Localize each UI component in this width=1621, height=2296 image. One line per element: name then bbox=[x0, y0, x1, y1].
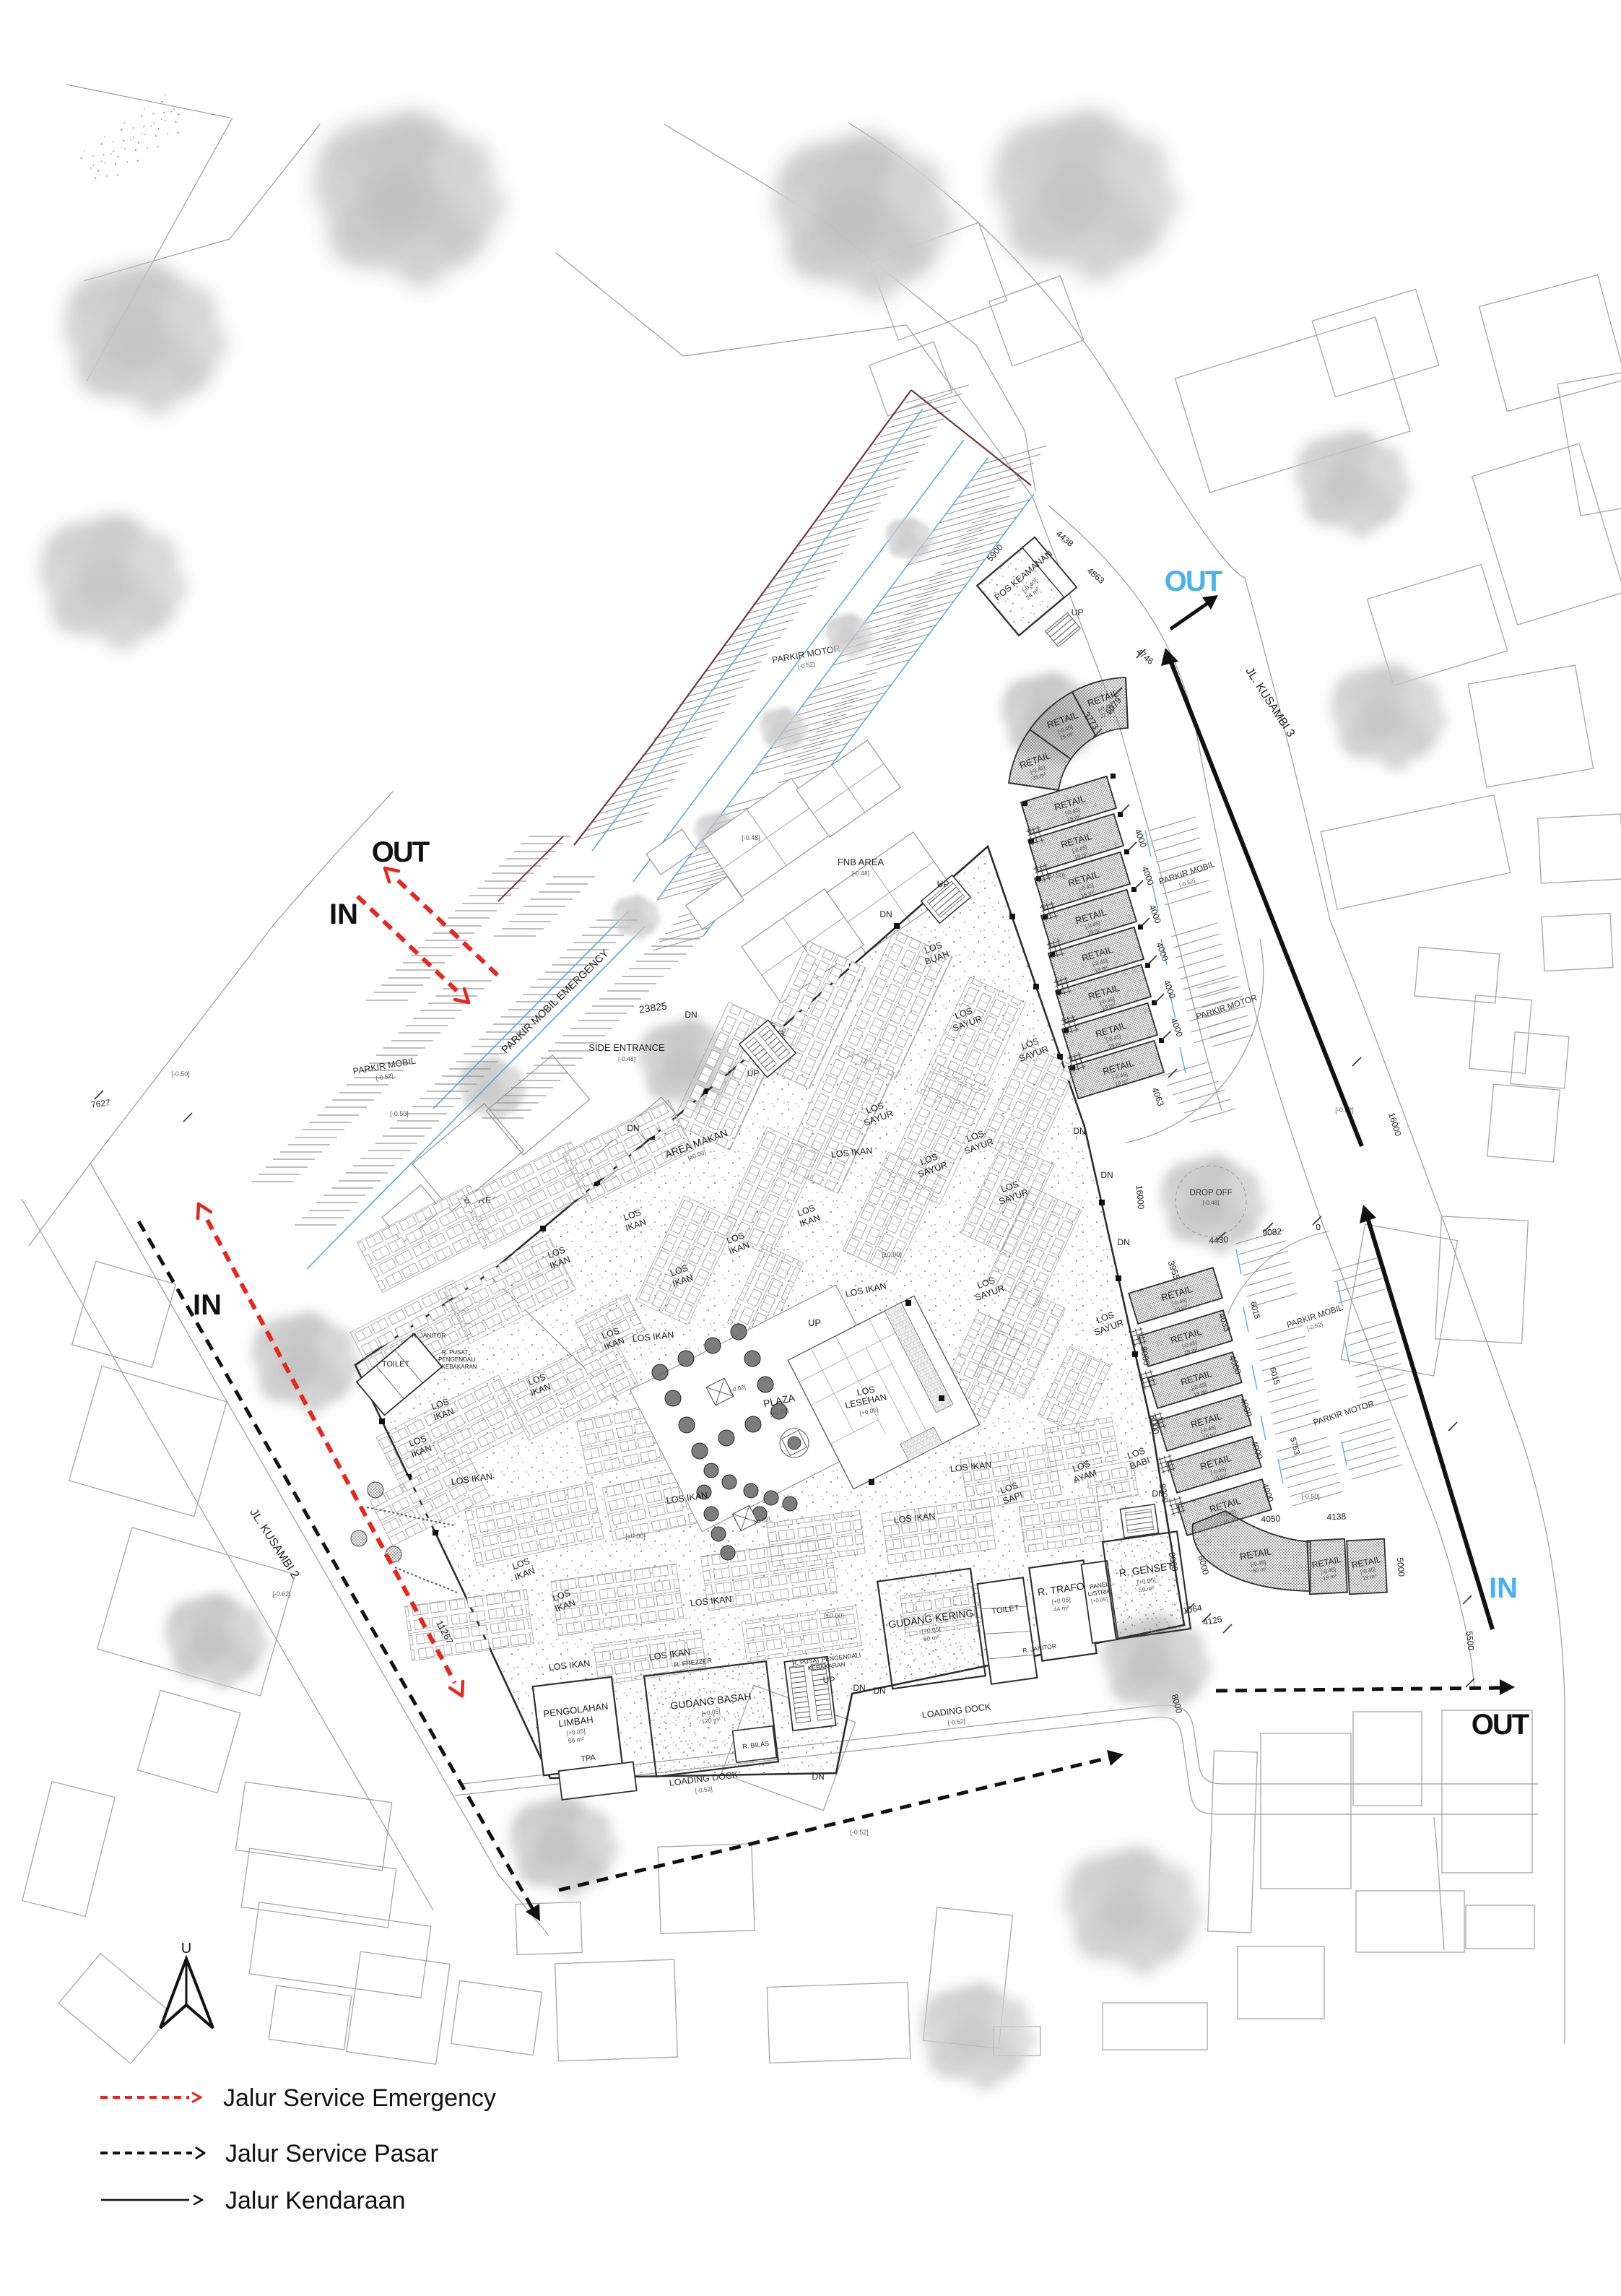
svg-text:SIDE ENTRANCE: SIDE ENTRANCE bbox=[588, 1042, 665, 1053]
svg-text:IN: IN bbox=[1489, 1572, 1518, 1604]
svg-text:DN: DN bbox=[879, 909, 892, 919]
svg-text:IN: IN bbox=[329, 898, 358, 930]
svg-text:16000: 16000 bbox=[1134, 1184, 1147, 1210]
svg-text:[-0.48]: [-0.48] bbox=[1203, 1200, 1220, 1206]
svg-text:[±0.00]: [±0.00] bbox=[882, 1251, 901, 1258]
svg-text:[-0.50]: [-0.50] bbox=[1046, 872, 1065, 879]
svg-text:DN: DN bbox=[812, 1772, 824, 1782]
svg-text:5000: 5000 bbox=[1395, 1557, 1407, 1577]
svg-text:[±0.00]: [±0.00] bbox=[824, 1612, 843, 1619]
svg-text:R. PUSAT: R. PUSAT bbox=[442, 1349, 468, 1356]
svg-text:[-0.62]: [-0.62] bbox=[272, 1590, 291, 1598]
svg-text:DN: DN bbox=[873, 1686, 885, 1696]
svg-text:DN: DN bbox=[685, 1010, 697, 1020]
svg-text:DROP OFF: DROP OFF bbox=[1189, 1189, 1232, 1197]
svg-text:5500: 5500 bbox=[1464, 1631, 1476, 1651]
svg-text:[-0.48]: [-0.48] bbox=[852, 870, 869, 877]
svg-text:9082: 9082 bbox=[1262, 1226, 1282, 1238]
svg-text:TPA: TPA bbox=[581, 1754, 597, 1764]
svg-text:Jalur Service Emergency: Jalur Service Emergency bbox=[223, 2084, 496, 2112]
svg-text:DN: DN bbox=[1100, 1170, 1113, 1180]
svg-text:4050: 4050 bbox=[1261, 1514, 1280, 1525]
svg-text:UP: UP bbox=[937, 879, 949, 889]
svg-text:[-0.50]: [-0.50] bbox=[1301, 1493, 1320, 1500]
svg-text:UP: UP bbox=[747, 1068, 760, 1078]
svg-text:0: 0 bbox=[1316, 1222, 1321, 1232]
svg-text:4430: 4430 bbox=[1209, 1234, 1229, 1246]
svg-text:TOILET: TOILET bbox=[382, 1360, 410, 1369]
svg-text:PENGENDALI: PENGENDALI bbox=[438, 1356, 476, 1363]
svg-text:[-0.52]: [-0.52] bbox=[850, 1829, 869, 1836]
svg-text:UP: UP bbox=[808, 1317, 821, 1328]
svg-text:DN: DN bbox=[1117, 1237, 1129, 1247]
svg-text:KEBAKARAN: KEBAKARAN bbox=[442, 1364, 477, 1370]
svg-text:[±0.00]: [±0.00] bbox=[625, 1533, 645, 1540]
svg-text:[-0.48]: [-0.48] bbox=[618, 1055, 635, 1062]
svg-text:OUT: OUT bbox=[372, 836, 430, 868]
svg-text:IN: IN bbox=[193, 1289, 222, 1321]
svg-text:4138: 4138 bbox=[1326, 1512, 1346, 1522]
svg-text:FNB AREA: FNB AREA bbox=[838, 857, 885, 867]
svg-text:DN: DN bbox=[627, 1123, 639, 1133]
svg-text:[-0.50]: [-0.50] bbox=[171, 1070, 190, 1078]
svg-text:U: U bbox=[181, 1941, 191, 1957]
svg-text:[-0.48]: [-0.48] bbox=[742, 834, 760, 841]
svg-text:DN: DN bbox=[853, 1683, 865, 1693]
svg-text:Jalur Kendaraan: Jalur Kendaraan bbox=[225, 2187, 406, 2214]
svg-text:[-0.50]: [-0.50] bbox=[390, 1110, 409, 1117]
svg-text:OUT: OUT bbox=[1472, 1709, 1529, 1741]
svg-text:UP: UP bbox=[823, 1675, 835, 1685]
svg-text:Jalur Service Pasar: Jalur Service Pasar bbox=[225, 2140, 438, 2167]
svg-text:R. JANITOR: R. JANITOR bbox=[412, 1332, 446, 1339]
svg-text:UP: UP bbox=[1072, 607, 1084, 618]
svg-text:OUT: OUT bbox=[1165, 566, 1222, 597]
svg-text:DN: DN bbox=[1073, 1126, 1085, 1136]
